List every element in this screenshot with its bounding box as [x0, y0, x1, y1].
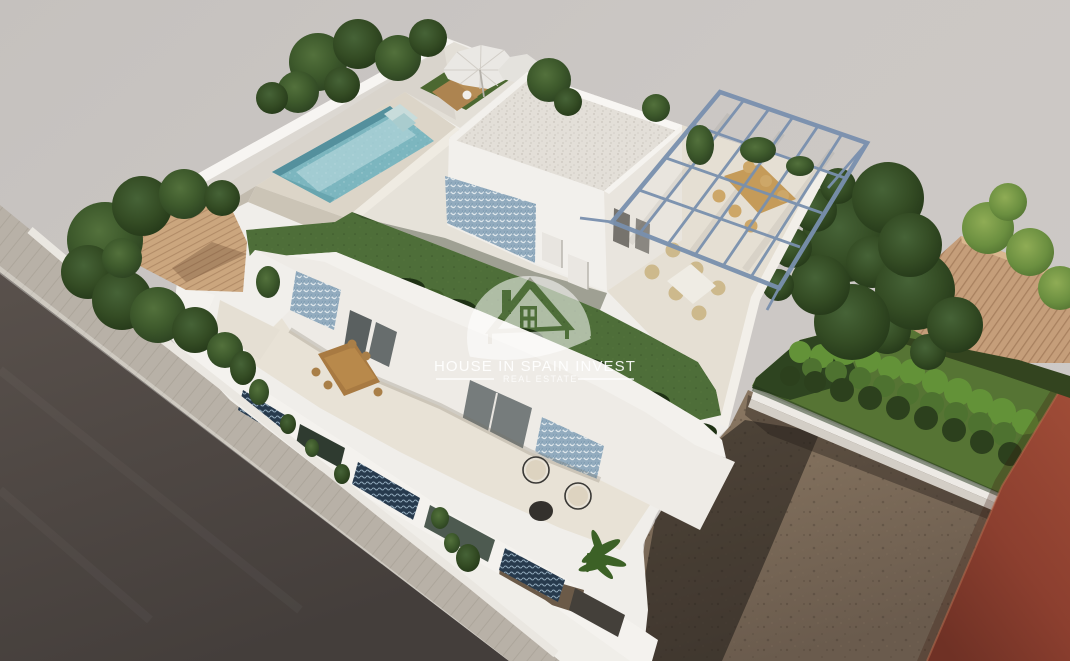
svg-text:HOUSE IN SPAIN INVEST: HOUSE IN SPAIN INVEST [434, 358, 636, 375]
svg-text:REAL ESTATE: REAL ESTATE [503, 374, 578, 384]
